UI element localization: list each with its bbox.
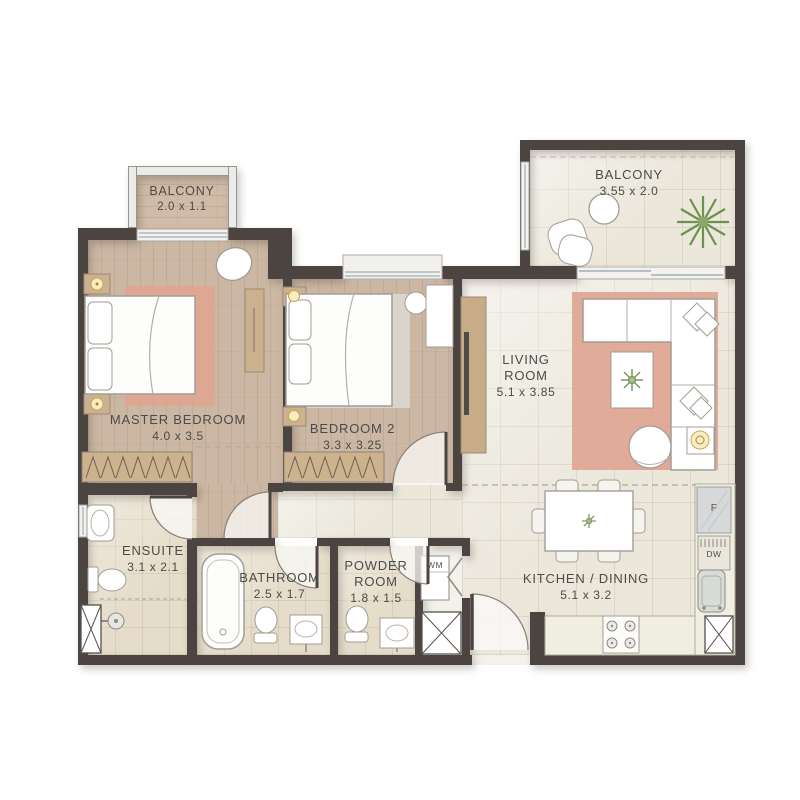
room-name: POWDER ROOM	[339, 558, 413, 590]
room-dims: 3.55 x 2.0	[564, 184, 694, 199]
room-name: BATHROOM	[222, 570, 337, 586]
room-label-bathroom: BATHROOM 2.5 x 1.7	[222, 570, 337, 601]
room-name: BALCONY	[564, 167, 694, 183]
wardrobe-bedroom2	[284, 452, 384, 482]
room-name: ENSUITE	[100, 543, 206, 559]
room-dims: 5.1 x 3.85	[488, 385, 564, 400]
toilet	[254, 607, 277, 643]
room-label-bedroom-2: BEDROOM 2 3.3 x 3.25	[290, 421, 415, 452]
toilet	[345, 606, 368, 642]
room-dims: 4.0 x 3.5	[88, 429, 268, 444]
room-dims: 2.0 x 1.1	[127, 200, 237, 214]
room-label-balcony-master: BALCONY 2.0 x 1.1	[127, 184, 237, 214]
door-ensuite	[150, 497, 192, 539]
ensuite-sink	[87, 505, 114, 541]
window-bedroom2-bay	[343, 255, 442, 279]
bifold-door	[448, 558, 462, 596]
room-label-powder-room: POWDER ROOM 1.8 x 1.5	[339, 558, 413, 605]
room-name: LIVING ROOM	[488, 352, 564, 384]
room-label-ensuite: ENSUITE 3.1 x 2.1	[100, 543, 206, 574]
room-label-balcony-living: BALCONY 3.55 x 2.0	[564, 167, 694, 198]
balcony-living-furniture	[545, 194, 729, 269]
bathtub	[202, 554, 244, 649]
room-name: MASTER BEDROOM	[88, 412, 268, 428]
powder-sink	[380, 618, 414, 652]
master-bedroom-furniture	[82, 242, 264, 482]
stove	[603, 616, 639, 653]
room-dims: 3.3 x 3.25	[290, 438, 415, 453]
desk-chair	[405, 292, 427, 314]
room-label-master-bedroom: MASTER BEDROOM 4.0 x 3.5	[88, 412, 268, 443]
window-ensuite	[79, 505, 87, 537]
lamp	[289, 291, 300, 302]
washer-label: WM	[421, 560, 449, 570]
balcony-table	[589, 194, 619, 224]
kitchen-sink	[698, 570, 725, 612]
bed-bedroom2	[286, 294, 392, 406]
tv-console	[461, 297, 486, 453]
bathroom-sink	[290, 615, 322, 652]
powder-fixtures	[345, 606, 414, 652]
shower-head	[100, 613, 124, 629]
room-dims: 2.5 x 1.7	[222, 587, 337, 602]
room-label-kitchen-dining: KITCHEN / DINING 5.1 x 3.2	[500, 571, 672, 602]
desk	[426, 285, 453, 347]
window-master-balcony	[137, 229, 228, 241]
armchair	[629, 426, 671, 468]
lamp-dot	[96, 403, 99, 406]
ensuite-fixtures	[81, 505, 126, 653]
fridge-label: F	[697, 503, 731, 514]
room-name: KITCHEN / DINING	[500, 571, 672, 587]
lamp	[289, 411, 300, 422]
shaft-kitchen	[705, 616, 733, 653]
room-label-living-room: LIVING ROOM 5.1 x 3.85	[488, 352, 564, 399]
lamp-dot	[96, 283, 99, 286]
room-dims: 1.8 x 1.5	[339, 591, 413, 606]
plant-coffee-table	[621, 369, 643, 391]
bed-master	[85, 296, 195, 394]
wardrobe-master	[82, 452, 192, 482]
furniture-layer	[0, 0, 800, 800]
lamp	[691, 431, 709, 449]
window-balcony2-side	[521, 162, 529, 250]
shaft-ensuite	[81, 605, 101, 653]
room-name: BEDROOM 2	[290, 421, 415, 437]
room-dims: 5.1 x 3.2	[500, 588, 672, 603]
dining-furniture	[532, 480, 645, 562]
dishwasher-label: DW	[698, 549, 730, 559]
room-dims: 3.1 x 2.1	[100, 560, 206, 575]
plant-balcony	[677, 196, 729, 248]
window-living-slider	[577, 267, 725, 279]
floor-plan: BALCONY 2.0 x 1.1 BALCONY 3.55 x 2.0 MAS…	[0, 0, 800, 800]
shaft-wm	[422, 612, 461, 654]
door-master-suite	[224, 492, 270, 538]
room-name: BALCONY	[127, 184, 237, 199]
dining-chair	[532, 509, 546, 533]
chair	[211, 242, 257, 286]
